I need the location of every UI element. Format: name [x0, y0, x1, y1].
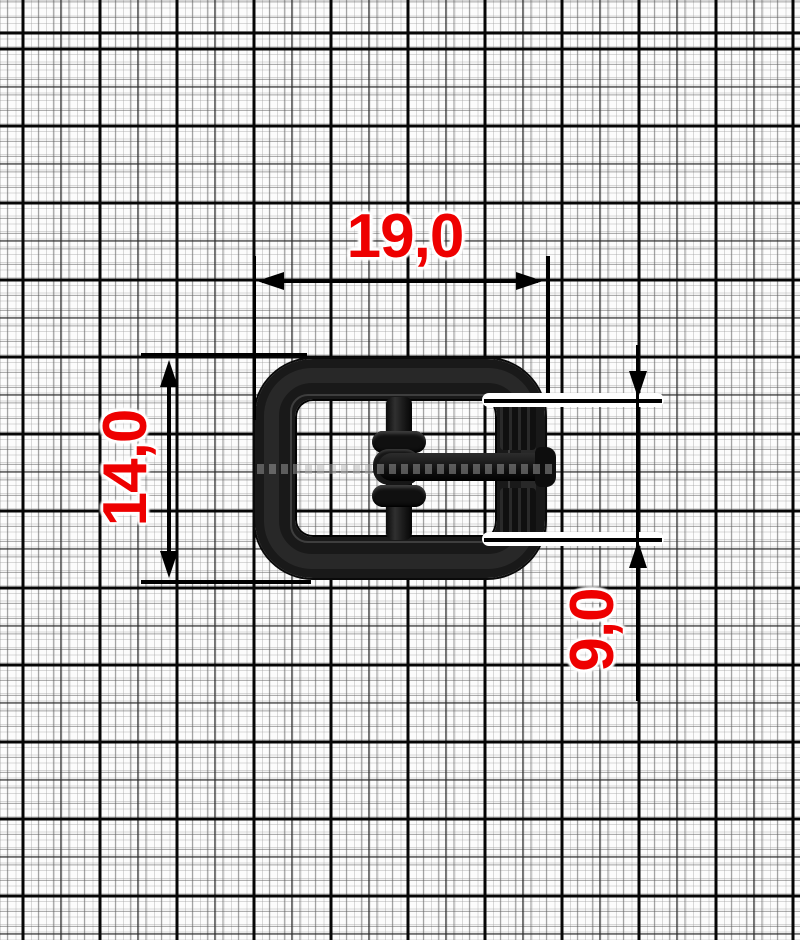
- buckle-right-bar-ridges-bottom: [500, 488, 536, 534]
- inner-dimension-line: [636, 345, 640, 701]
- inner-arrow-up-icon: [629, 541, 647, 568]
- watermark-band: [257, 464, 553, 474]
- dimension-inner-height-label: 9,0: [561, 545, 625, 715]
- height-dimension-line: [167, 372, 171, 566]
- width-arrow-right-icon: [516, 272, 543, 290]
- height-extension-line-bottom: [141, 580, 311, 584]
- width-extension-line-left: [253, 256, 257, 420]
- width-arrow-left-icon: [257, 272, 284, 290]
- width-dimension-line: [262, 280, 538, 284]
- inner-arrow-down-icon: [629, 371, 647, 398]
- height-arrow-down-icon: [160, 551, 178, 578]
- height-arrow-up-icon: [160, 360, 178, 387]
- dimension-width-label: 19,0: [305, 206, 505, 268]
- buckle-right-bar-ridges-top: [500, 404, 536, 450]
- dimension-height-label: 14,0: [94, 383, 158, 553]
- buckle-roller-bottom: [372, 485, 426, 507]
- width-extension-line-right: [546, 256, 550, 397]
- height-extension-line-top: [141, 353, 307, 357]
